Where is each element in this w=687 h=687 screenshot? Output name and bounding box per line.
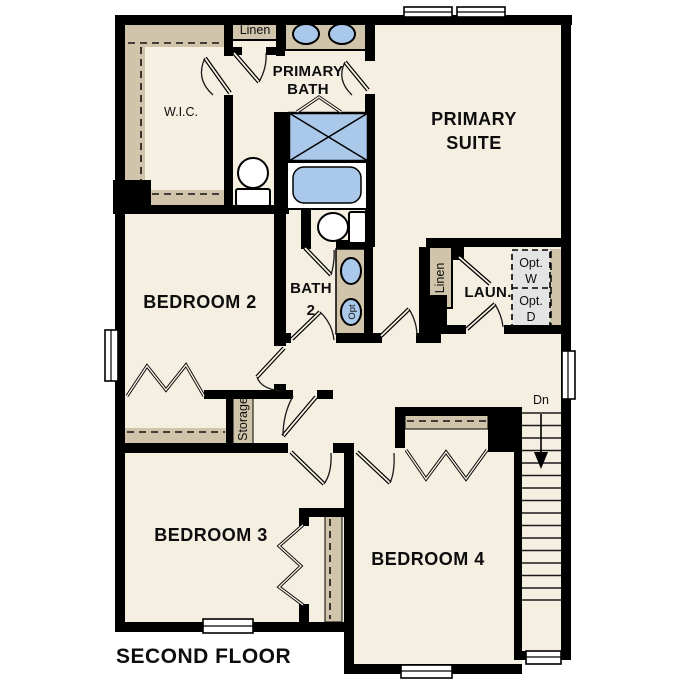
opt-dryer-label-2: D [526, 310, 535, 324]
bath2-label-2: 2 [307, 302, 316, 319]
bedroom2-closet-shelf [125, 428, 227, 444]
window [203, 619, 253, 633]
toilet [318, 212, 366, 243]
sink [329, 24, 355, 44]
window [457, 7, 505, 17]
floor-title: SECOND FLOOR [116, 645, 291, 668]
linen-upper-label: Linen [240, 23, 271, 37]
floor-plan-canvas: Linen PRIMARY BATH W.I.C. PRIMARY SUITE … [0, 0, 687, 687]
bedroom3-label: BEDROOM 3 [154, 525, 268, 545]
bathtub [287, 162, 367, 209]
shower [289, 113, 368, 161]
optional-sink-label: Opt [347, 304, 358, 320]
toilet [236, 158, 270, 206]
linen-laundry-label: Linen [433, 263, 447, 294]
bath2-label-1: BATH [290, 280, 332, 297]
storage-label: Storage [236, 397, 250, 441]
wic-label: W.I.C. [164, 105, 198, 119]
opt-dryer-label-1: Opt. [519, 294, 543, 308]
primary-bath-label-1: PRIMARY [273, 63, 344, 80]
bedroom3-closet-shelf [325, 516, 342, 622]
bedroom4-label: BEDROOM 4 [371, 549, 485, 569]
floor-plan-drawing: Linen PRIMARY BATH W.I.C. PRIMARY SUITE … [0, 0, 687, 687]
window [404, 7, 452, 17]
window [526, 651, 561, 664]
bedroom2-label: BEDROOM 2 [143, 292, 257, 312]
opt-washer-label-1: Opt. [519, 256, 543, 270]
primary-suite-label-1: PRIMARY [431, 109, 517, 129]
sink [341, 258, 361, 284]
primary-suite-label-2: SUITE [446, 133, 502, 153]
stairs-dn-label: Dn [533, 393, 549, 407]
sink [293, 24, 319, 44]
window [401, 665, 452, 678]
laundry-label: LAUN. [464, 284, 511, 301]
opt-washer-label-2: W [525, 272, 537, 286]
window [105, 330, 118, 381]
primary-bath-label-2: BATH [287, 81, 329, 98]
wic-shelf-left [125, 25, 145, 190]
window [562, 351, 575, 399]
